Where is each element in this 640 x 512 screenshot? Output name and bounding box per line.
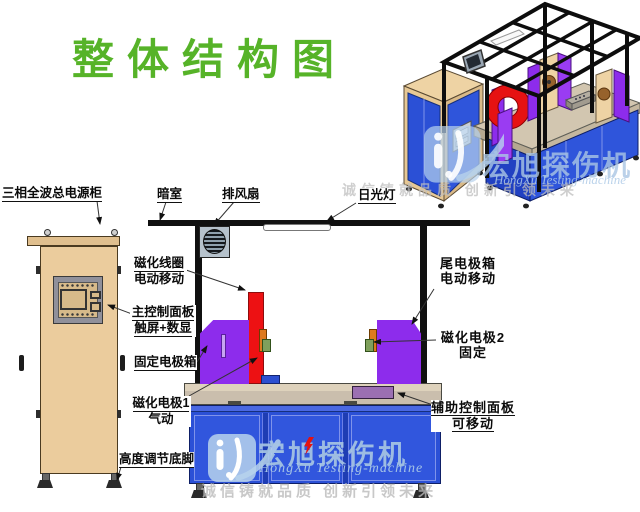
page-title: 整体结构图 bbox=[72, 26, 347, 87]
base-divider bbox=[342, 413, 349, 484]
cabinet-handle bbox=[19, 355, 24, 371]
cabinet-hinge bbox=[36, 266, 40, 274]
base-door bbox=[194, 415, 260, 481]
fan-grille-icon bbox=[203, 229, 226, 254]
panel-buttons-row bbox=[60, 283, 96, 288]
label-magnetizing-electrode2: 磁化电极2 固定 bbox=[436, 330, 510, 360]
label-height-adjustable-feet: 高度调节底脚 bbox=[119, 452, 194, 468]
cabinet-hinge bbox=[117, 266, 121, 274]
label-magnetizing-electrode1: 磁化电极1 气动 bbox=[131, 396, 191, 427]
panel-buttons-row bbox=[60, 312, 96, 317]
label-magnetizing-coil: 磁化线圈 电动移动 bbox=[131, 256, 187, 287]
base-door bbox=[351, 415, 436, 481]
label-auxiliary-control-panel: 辅助控制面板 可移动 bbox=[431, 400, 515, 432]
cabinet-screw bbox=[111, 229, 118, 236]
auxiliary-control-panel bbox=[352, 386, 394, 399]
cabinet-foot bbox=[106, 473, 122, 488]
base-top-rail bbox=[190, 406, 440, 412]
table-mark bbox=[228, 401, 241, 404]
tail-electrode-box bbox=[377, 320, 421, 384]
isometric-view bbox=[386, 0, 640, 224]
cabinet-foot bbox=[37, 473, 53, 488]
electrode-box-slot bbox=[221, 334, 226, 358]
table-accessory-box bbox=[261, 375, 280, 384]
touch-screen bbox=[60, 289, 87, 310]
label-tail-electrode-box: 尾电极箱 电动移动 bbox=[434, 256, 502, 286]
machine-base-cabinet bbox=[189, 405, 441, 484]
machine-foot bbox=[191, 483, 207, 498]
cabinet-hinge bbox=[117, 410, 121, 418]
label-main-control-panel: 主控制面板 触屏+数显 bbox=[130, 305, 196, 337]
power-cabinet-top-cap bbox=[27, 236, 120, 246]
label-fixed-electrode-box: 固定电极箱 bbox=[134, 355, 197, 371]
cabinet-hinge bbox=[36, 410, 40, 418]
base-door bbox=[271, 415, 340, 481]
table-mark bbox=[344, 401, 357, 404]
base-divider bbox=[262, 413, 269, 484]
label-dark-room: 暗室 bbox=[157, 187, 182, 203]
digital-display bbox=[90, 291, 101, 299]
magnetizing-electrode1 bbox=[262, 339, 271, 352]
fluorescent-lamp bbox=[263, 224, 331, 231]
iso-exhaust-fan bbox=[463, 50, 485, 73]
machine-foot bbox=[413, 483, 429, 498]
label-power-cabinet: 三相全波总电源柜 bbox=[2, 186, 102, 202]
cabinet-handle bbox=[120, 355, 125, 371]
machine-table bbox=[184, 383, 442, 405]
cabinet-screw bbox=[44, 229, 51, 236]
magnetizing-electrode2 bbox=[365, 339, 374, 352]
diagram-canvas: 整体结构图 bbox=[0, 0, 640, 512]
digital-display bbox=[90, 302, 101, 312]
dark-room-right-post bbox=[420, 226, 427, 400]
exhaust-fan bbox=[199, 226, 230, 258]
label-exhaust-fan: 排风扇 bbox=[222, 187, 260, 203]
label-fluorescent-lamp: 日光灯 bbox=[358, 188, 396, 204]
